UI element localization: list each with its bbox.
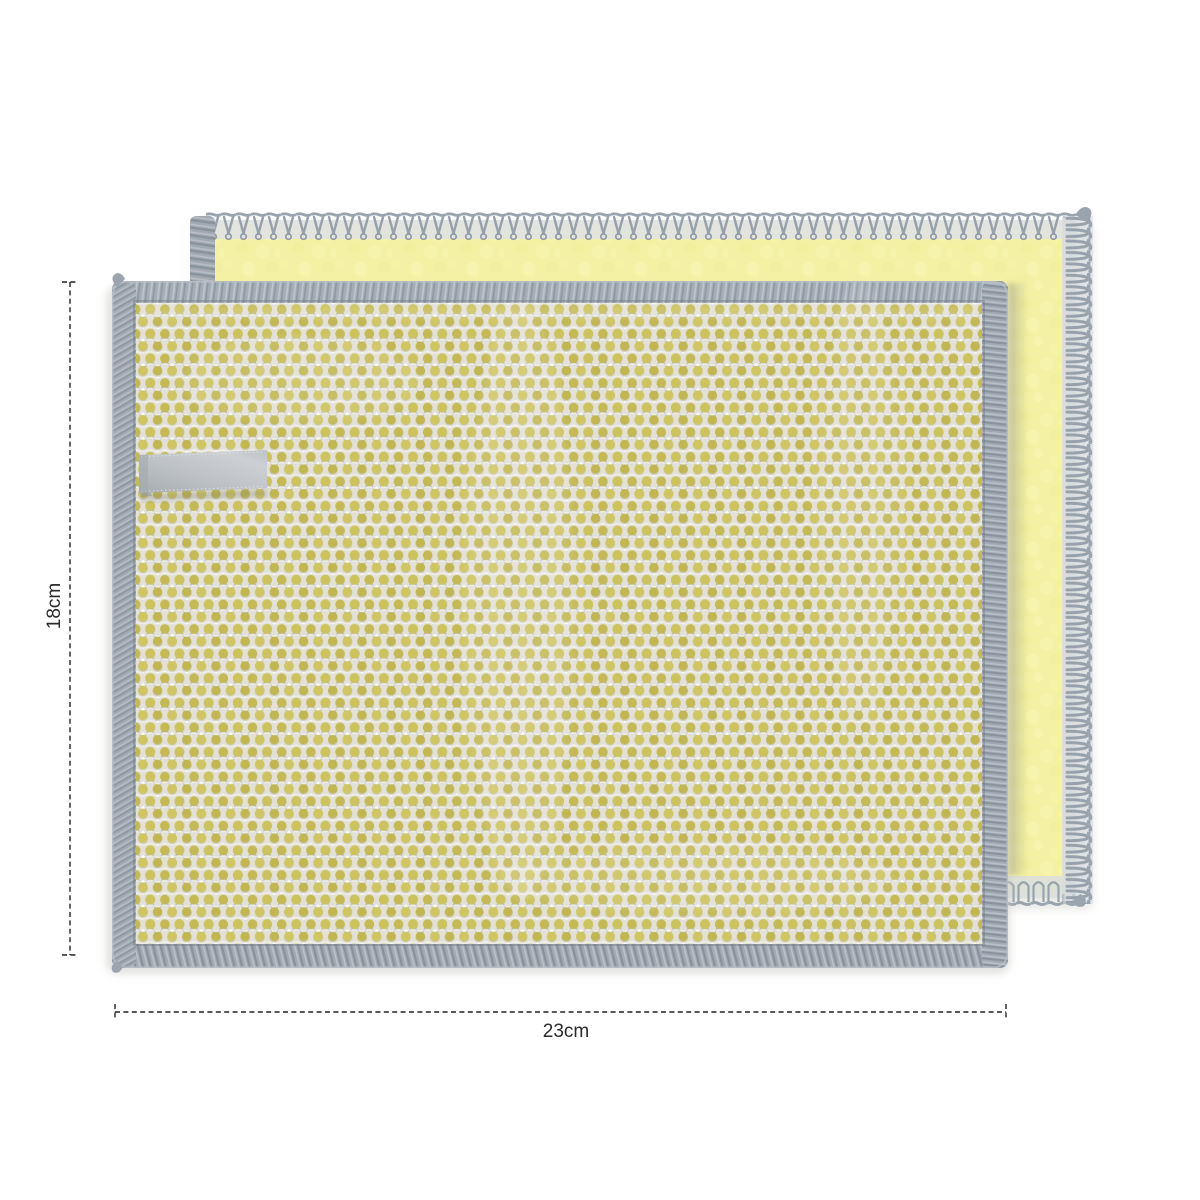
svg-text:23cm: 23cm: [543, 1021, 589, 1042]
svg-text:18cm: 18cm: [44, 583, 65, 629]
